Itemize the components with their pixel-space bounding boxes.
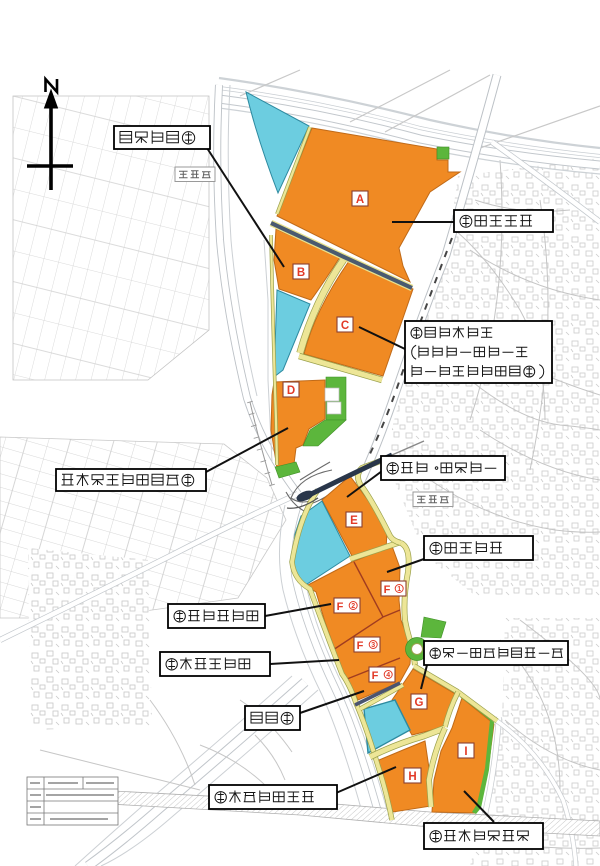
- svg-text:A: A: [356, 194, 364, 206]
- svg-text:4: 4: [386, 672, 390, 679]
- svg-text:D: D: [287, 385, 295, 397]
- svg-text:I: I: [464, 746, 467, 758]
- svg-text:C: C: [341, 320, 349, 332]
- svg-text:1: 1: [397, 586, 401, 593]
- svg-text:G: G: [415, 697, 424, 709]
- svg-text:F: F: [357, 640, 364, 652]
- svg-text:F: F: [337, 601, 344, 613]
- svg-text:3: 3: [371, 642, 375, 649]
- svg-text:B: B: [297, 267, 305, 279]
- svg-text:F: F: [384, 584, 391, 596]
- svg-text:E: E: [350, 515, 358, 527]
- svg-text:F: F: [372, 670, 379, 682]
- svg-text:H: H: [408, 771, 416, 783]
- svg-text:2: 2: [351, 603, 355, 610]
